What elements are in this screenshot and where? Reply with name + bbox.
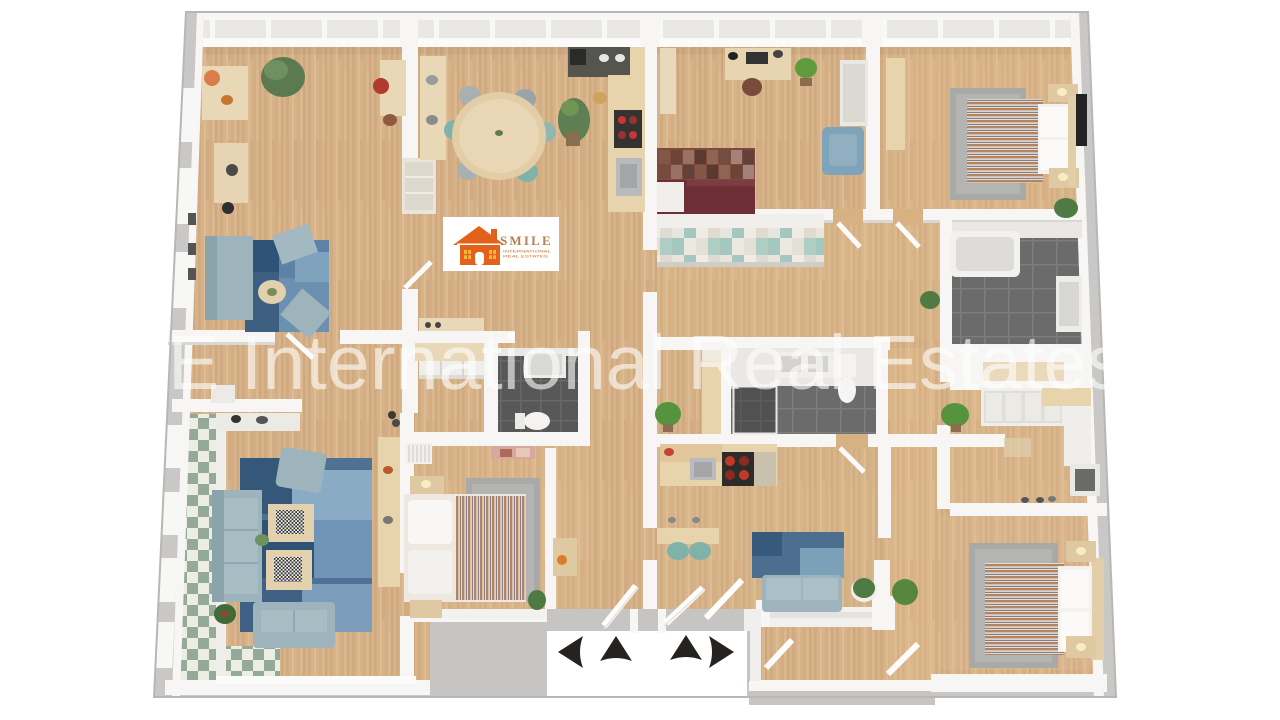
- svg-text:SMILE: SMILE: [500, 233, 553, 248]
- svg-text:REAL ESTATES: REAL ESTATES: [503, 255, 549, 259]
- svg-text:INTERNATIONAL: INTERNATIONAL: [503, 250, 551, 254]
- svg-text:E International Real Estates: E International Real Estates: [168, 320, 1125, 406]
